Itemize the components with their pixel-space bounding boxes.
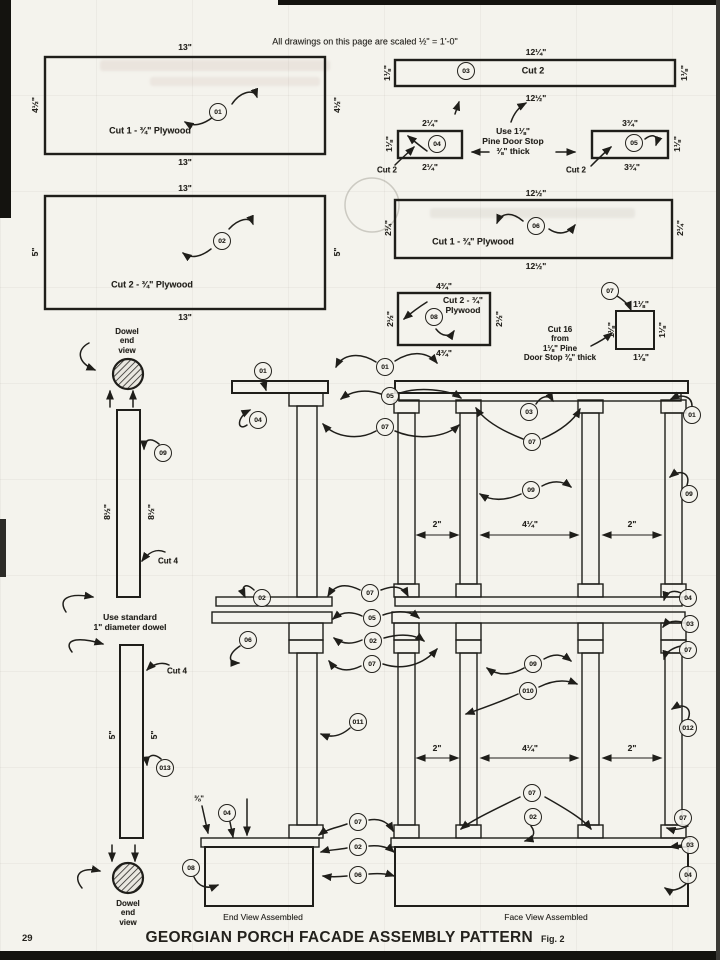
dim-label: 1⅛" [679,65,689,81]
scan-edge-left [0,0,11,218]
dim-label: 2¼" [422,162,438,172]
dim-label: 4½" [332,97,342,113]
dim-label: 2" [628,519,637,529]
part-number-badge: 07 [523,784,541,802]
part-number-badge: 06 [239,631,257,649]
piece-013-cut-note: Cut 4 [167,666,187,675]
part-number-badge: 03 [681,836,699,854]
part-number-badge: 013 [156,759,174,777]
part-number-badge: 06 [527,217,545,235]
part-number-badge: 07 [349,813,367,831]
dim-label: 4½" [30,97,40,113]
page-title: GEORGIAN PORCH FACADE ASSEMBLY PATTERN [146,929,533,946]
piece-03-cut-note: Cut 2 [522,66,545,77]
scan-edge-right [716,0,720,960]
dim-label: 4¼" [522,743,538,753]
dowel-end-view-label: Dowel end view [115,327,139,355]
part-number-badge: 07 [601,282,619,300]
part-number-badge: 02 [364,632,382,650]
piece-09-outline [117,410,140,597]
piece-04-cut-note: Cut 2 [377,165,397,174]
dim-label: 2¼" [422,118,438,128]
part-number-badge: 01 [254,362,272,380]
scan-edge-top [278,0,720,5]
part-number-badge: 010 [519,682,537,700]
part-number-badge: 02 [349,838,367,856]
dim-label: 12½" [526,261,547,271]
part-number-badge: 03 [681,615,699,633]
dim-label: 2" [433,743,442,753]
part-number-badge: 02 [524,808,542,826]
dim-label: 3¾" [622,118,638,128]
part-number-badge: 012 [679,719,697,737]
piece-05-cut-note: Cut 2 [566,165,586,174]
dim-label: 12¼" [526,47,547,57]
part-number-badge: 05 [381,387,399,405]
part-number-badge: 07 [376,418,394,436]
dowel-end-view-label: Dowel end view [116,899,140,927]
part-number-badge: 03 [457,62,475,80]
piece-01-outline [45,57,325,154]
dim-label: 8½" [146,504,156,520]
part-number-badge: 08 [182,859,200,877]
dimension-lines [417,532,661,761]
part-number-badge: 08 [425,308,443,326]
part-number-badge: 03 [520,403,538,421]
dim-label: 8½" [102,504,112,520]
dim-label: 5" [107,731,117,740]
piece-08-cut-note: Cut 2 - ¾" Plywood [443,295,483,315]
dim-label: 13" [178,157,192,167]
assembly-views [201,381,690,906]
dim-label: 12½" [526,188,547,198]
piece-09-cut-note: Cut 4 [158,556,178,565]
face-view-caption: Face View Assembled [504,912,587,922]
dim-label: 2" [628,743,637,753]
end-view-caption: End View Assembled [223,912,303,922]
dim-label: 5" [332,248,342,257]
piece-01-cut-note: Cut 1 - ¾" Plywood [109,126,191,137]
part-number-badge: 04 [679,589,697,607]
part-number-badge: 05 [363,609,381,627]
door-stop-note: Use 1⅛" Pine Door Stop ⅜" thick [482,126,543,156]
dim-label: 2¼" [675,220,685,236]
dim-label: 4¾" [436,348,452,358]
piece-02-outline [45,196,325,309]
scanned-pattern-page: 13"13"4½"4½"Cut 1 - ¾" Plywood13"13"5"5"… [0,0,720,960]
piece-013-outline [120,645,143,838]
dim-label: 1⅛" [657,322,667,338]
dim-label: 2¼" [383,220,393,236]
part-number-badge: 02 [213,232,231,250]
dim-label: 2" [433,519,442,529]
part-number-badge: 01 [376,358,394,376]
title-row: GEORGIAN PORCH FACADE ASSEMBLY PATTERNFi… [0,929,710,947]
part-number-badge: 01 [209,103,227,121]
dim-label: 2½" [385,311,395,327]
part-number-badge: 09 [524,655,542,673]
dim-label: 1⅛" [633,352,649,362]
dim-label: 5" [30,248,40,257]
scale-note: All drawings on this page are scaled ½" … [272,37,457,48]
dim-label: 1⅛" [606,322,616,338]
part-number-badge: 07 [361,584,379,602]
piece-07-cut-note: Cut 16 from 1⅛" Pine Door Stop ⅜" thick [524,325,596,363]
part-number-badge: 09 [154,444,172,462]
dowel-note: Use standard 1" diameter dowel [94,612,167,632]
scan-edge-bottom [0,951,720,960]
dowel-end-view-top [113,359,143,389]
part-number-badge: 01 [683,406,701,424]
dowel-end-view-bottom [113,863,143,893]
part-number-badge: 04 [679,866,697,884]
part-number-badge: 07 [679,641,697,659]
part-number-badge: 011 [349,713,367,731]
part-number-badge: 09 [680,485,698,503]
scan-edge-left-lower [0,519,6,577]
part-number-badge: 06 [349,866,367,884]
part-number-badge: 04 [428,135,446,153]
dim-label: 1⅛" [672,136,682,152]
dim-label: 1⅛" [382,65,392,81]
part-number-badge: 07 [523,433,541,451]
piece-06-cut-note: Cut 1 - ¾" Plywood [432,237,514,248]
part-number-badge: 09 [522,481,540,499]
part-number-badge: 07 [674,809,692,827]
part-number-badge: 02 [253,589,271,607]
piece-07-outline [616,311,654,349]
dim-label: 2½" [494,311,504,327]
dim-label: 13" [178,312,192,322]
part-number-badge: 07 [363,655,381,673]
dim-label: 13" [178,42,192,52]
part-number-badge: 04 [218,804,236,822]
dim-label: 1⅛" [633,299,649,309]
piece-02-cut-note: Cut 2 - ¾" Plywood [111,280,193,291]
figure-label: Fig. 2 [541,934,565,944]
dim-label: 13" [178,183,192,193]
dim-label: ⅜" [194,795,204,804]
dim-label: 4¾" [436,281,452,291]
dim-label: 5" [149,731,159,740]
dim-label: 3¾" [624,162,640,172]
part-number-badge: 05 [625,134,643,152]
dim-label: 12½" [526,93,547,103]
part-number-badge: 04 [249,411,267,429]
dim-label: 4¼" [522,519,538,529]
dim-label: 1⅛" [384,136,394,152]
